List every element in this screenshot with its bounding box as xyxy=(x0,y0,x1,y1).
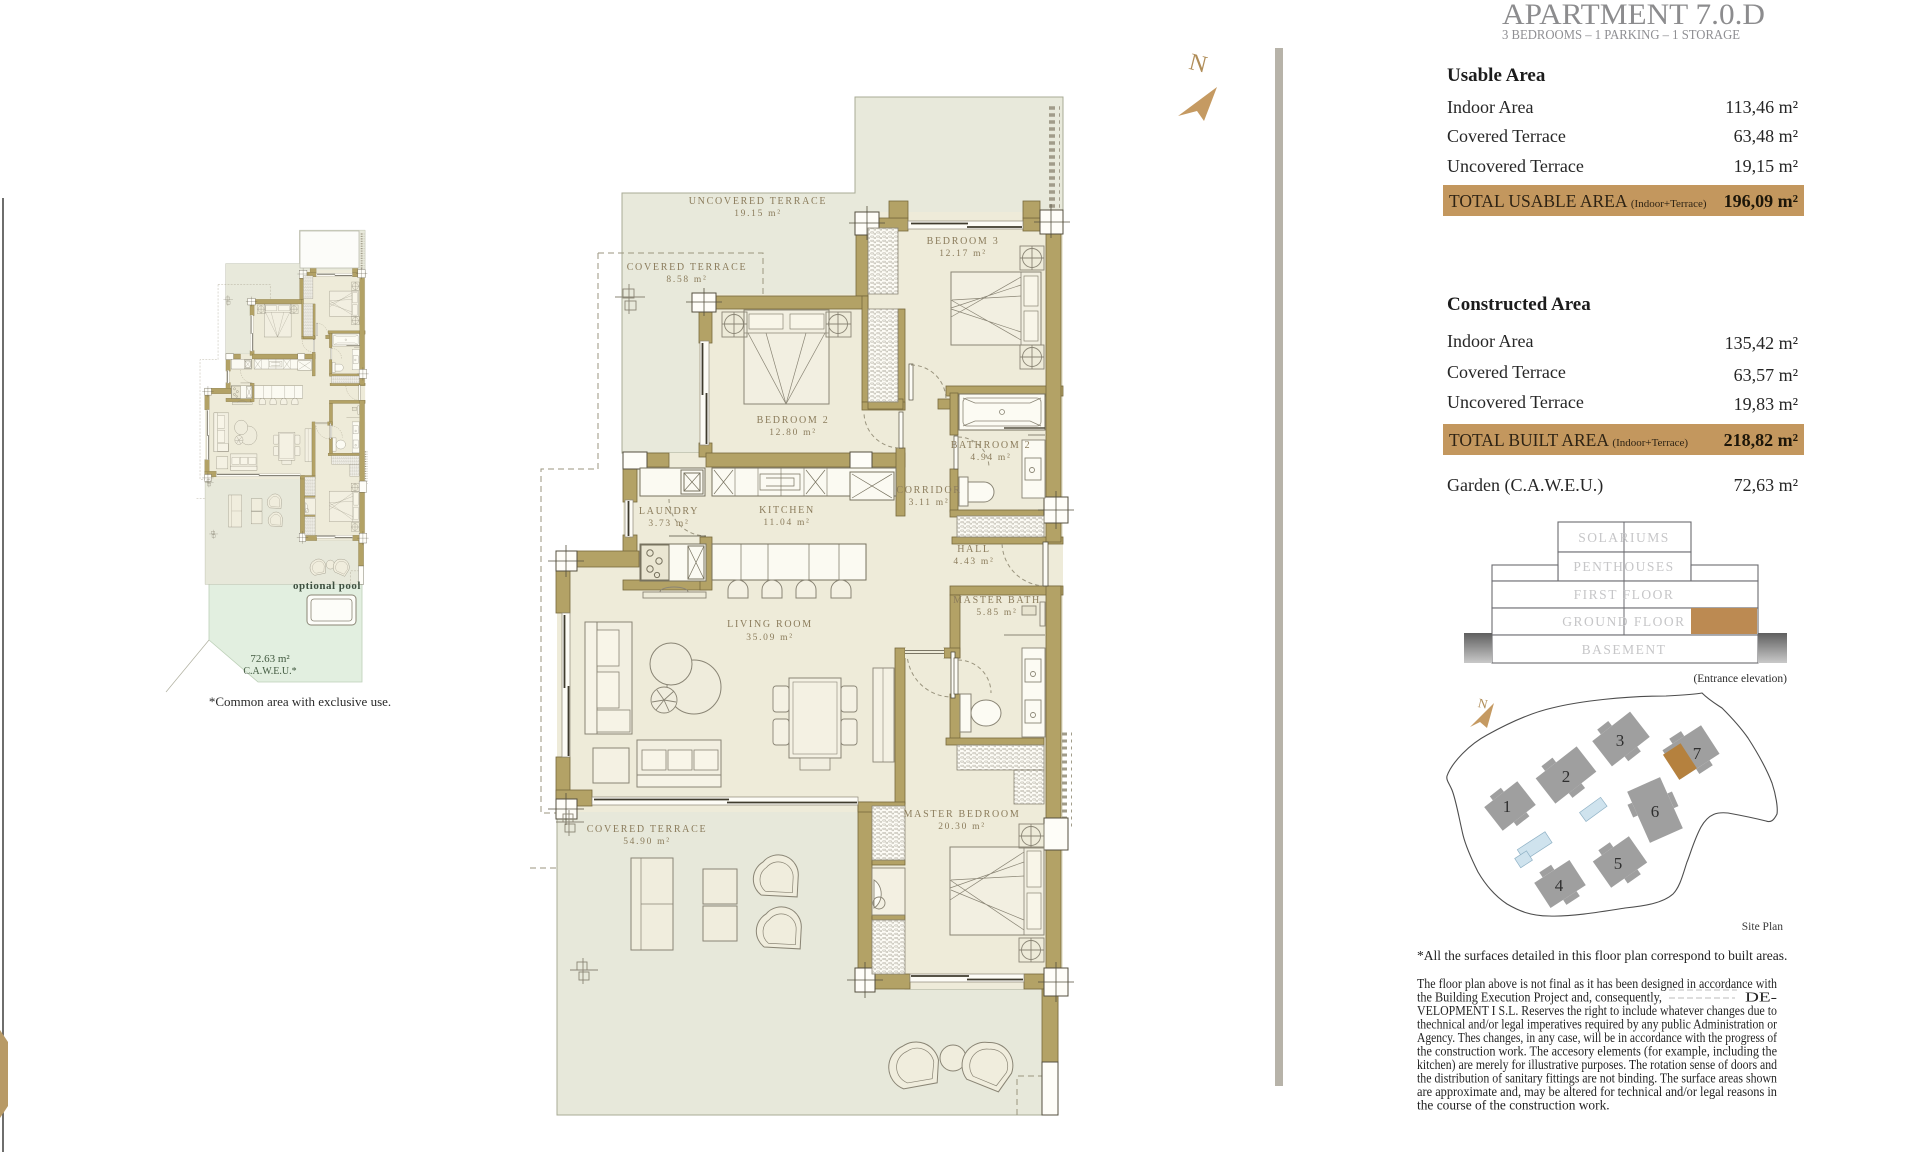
svg-text:196,09 m²: 196,09 m² xyxy=(1724,191,1798,211)
svg-text:Covered Terrace: Covered Terrace xyxy=(1447,126,1566,146)
svg-text:20.30 m²: 20.30 m² xyxy=(938,822,986,832)
svg-text:218,82 m²: 218,82 m² xyxy=(1724,430,1798,450)
svg-text:113,46 m²: 113,46 m² xyxy=(1725,97,1798,117)
svg-text:*Common area with exclusive us: *Common area with exclusive use. xyxy=(209,694,391,709)
svg-text:(Entrance elevation): (Entrance elevation) xyxy=(1693,673,1787,685)
svg-text:GROUND FLOOR: GROUND FLOOR xyxy=(1562,614,1685,629)
svg-text:Constructed Area: Constructed Area xyxy=(1447,294,1591,315)
svg-text:Covered Terrace: Covered Terrace xyxy=(1447,362,1566,382)
svg-text:63,57 m²: 63,57 m² xyxy=(1734,365,1798,385)
svg-text:12.80 m²: 12.80 m² xyxy=(769,428,817,438)
svg-text:BASEMENT: BASEMENT xyxy=(1582,642,1667,657)
svg-text:LIVING ROOM: LIVING ROOM xyxy=(727,619,813,630)
svg-text:APARTMENT 7.0.D: APARTMENT 7.0.D xyxy=(1502,0,1765,31)
svg-text:19,83 m²: 19,83 m² xyxy=(1734,394,1798,414)
svg-text:FIRST FLOOR: FIRST FLOOR xyxy=(1574,587,1675,602)
svg-text:3.73 m²: 3.73 m² xyxy=(648,519,689,529)
svg-text:72.63 m²: 72.63 m² xyxy=(250,653,290,665)
svg-text:72,63 m²: 72,63 m² xyxy=(1734,475,1798,495)
svg-text:PENTHOUSES: PENTHOUSES xyxy=(1573,559,1674,574)
svg-text:4: 4 xyxy=(1555,876,1564,895)
svg-text:LAUNDRY: LAUNDRY xyxy=(639,506,699,517)
svg-text:optional pool: optional pool xyxy=(293,580,361,592)
svg-text:7: 7 xyxy=(1693,744,1702,763)
svg-text:BEDROOM 3: BEDROOM 3 xyxy=(927,236,1000,247)
svg-text:Garden (C.A.W.E.U.): Garden (C.A.W.E.U.) xyxy=(1447,475,1603,496)
svg-text:the course of the construction: the course of the construction work. xyxy=(1417,1098,1610,1113)
svg-text:Uncovered Terrace: Uncovered Terrace xyxy=(1447,156,1584,176)
svg-text:Usable Area: Usable Area xyxy=(1447,65,1546,86)
svg-text:4.43 m²: 4.43 m² xyxy=(953,557,994,567)
svg-text:135,42 m²: 135,42 m² xyxy=(1725,333,1798,353)
svg-text:6: 6 xyxy=(1651,802,1660,821)
svg-text:3.11 m²: 3.11 m² xyxy=(909,498,950,508)
svg-text:Site Plan: Site Plan xyxy=(1742,921,1783,933)
svg-text:12.17 m²: 12.17 m² xyxy=(939,249,987,259)
svg-text:2: 2 xyxy=(1562,767,1571,786)
svg-text:COVERED TERRACE: COVERED TERRACE xyxy=(627,262,748,273)
svg-text:MASTER BEDROOM: MASTER BEDROOM xyxy=(904,809,1021,820)
svg-text:CORRIDOR: CORRIDOR xyxy=(896,485,961,496)
svg-text:Indoor Area: Indoor Area xyxy=(1447,331,1533,351)
svg-text:Indoor Area: Indoor Area xyxy=(1447,97,1533,117)
svg-text:1: 1 xyxy=(1503,797,1512,816)
svg-text:C.A.W.E.U.*: C.A.W.E.U.* xyxy=(243,666,296,677)
svg-text:63,48 m²: 63,48 m² xyxy=(1734,126,1798,146)
svg-text:BATHROOM 2: BATHROOM 2 xyxy=(951,440,1032,451)
svg-text:4.94 m²: 4.94 m² xyxy=(970,453,1011,463)
svg-text:N: N xyxy=(1186,49,1209,78)
svg-text:3: 3 xyxy=(1616,731,1625,750)
svg-text:5.85 m²: 5.85 m² xyxy=(976,608,1017,618)
svg-text:54.90 m²: 54.90 m² xyxy=(623,837,671,847)
svg-text:*All the surfaces detailed in: *All the surfaces detailed in this floor… xyxy=(1417,948,1787,963)
svg-text:8.58 m²: 8.58 m² xyxy=(666,275,707,285)
svg-text:UNCOVERED TERRACE: UNCOVERED TERRACE xyxy=(689,196,827,207)
svg-text:5: 5 xyxy=(1614,854,1623,873)
svg-text:19,15 m²: 19,15 m² xyxy=(1734,156,1798,176)
svg-text:KITCHEN: KITCHEN xyxy=(759,505,815,516)
svg-text:BEDROOM 2: BEDROOM 2 xyxy=(757,415,830,426)
svg-text:SOLARIUMS: SOLARIUMS xyxy=(1578,530,1670,545)
svg-text:MASTER BATH: MASTER BATH xyxy=(953,595,1041,606)
svg-text:35.09 m²: 35.09 m² xyxy=(746,633,794,643)
svg-text:HALL: HALL xyxy=(957,544,990,555)
svg-text:COVERED TERRACE: COVERED TERRACE xyxy=(587,824,708,835)
svg-text:3 BEDROOMS – 1 PARKING – 1 STO: 3 BEDROOMS – 1 PARKING – 1 STORAGE xyxy=(1502,28,1740,43)
svg-text:11.04 m²: 11.04 m² xyxy=(763,518,810,528)
svg-text:Uncovered Terrace: Uncovered Terrace xyxy=(1447,392,1584,412)
svg-text:19.15 m²: 19.15 m² xyxy=(734,209,782,219)
